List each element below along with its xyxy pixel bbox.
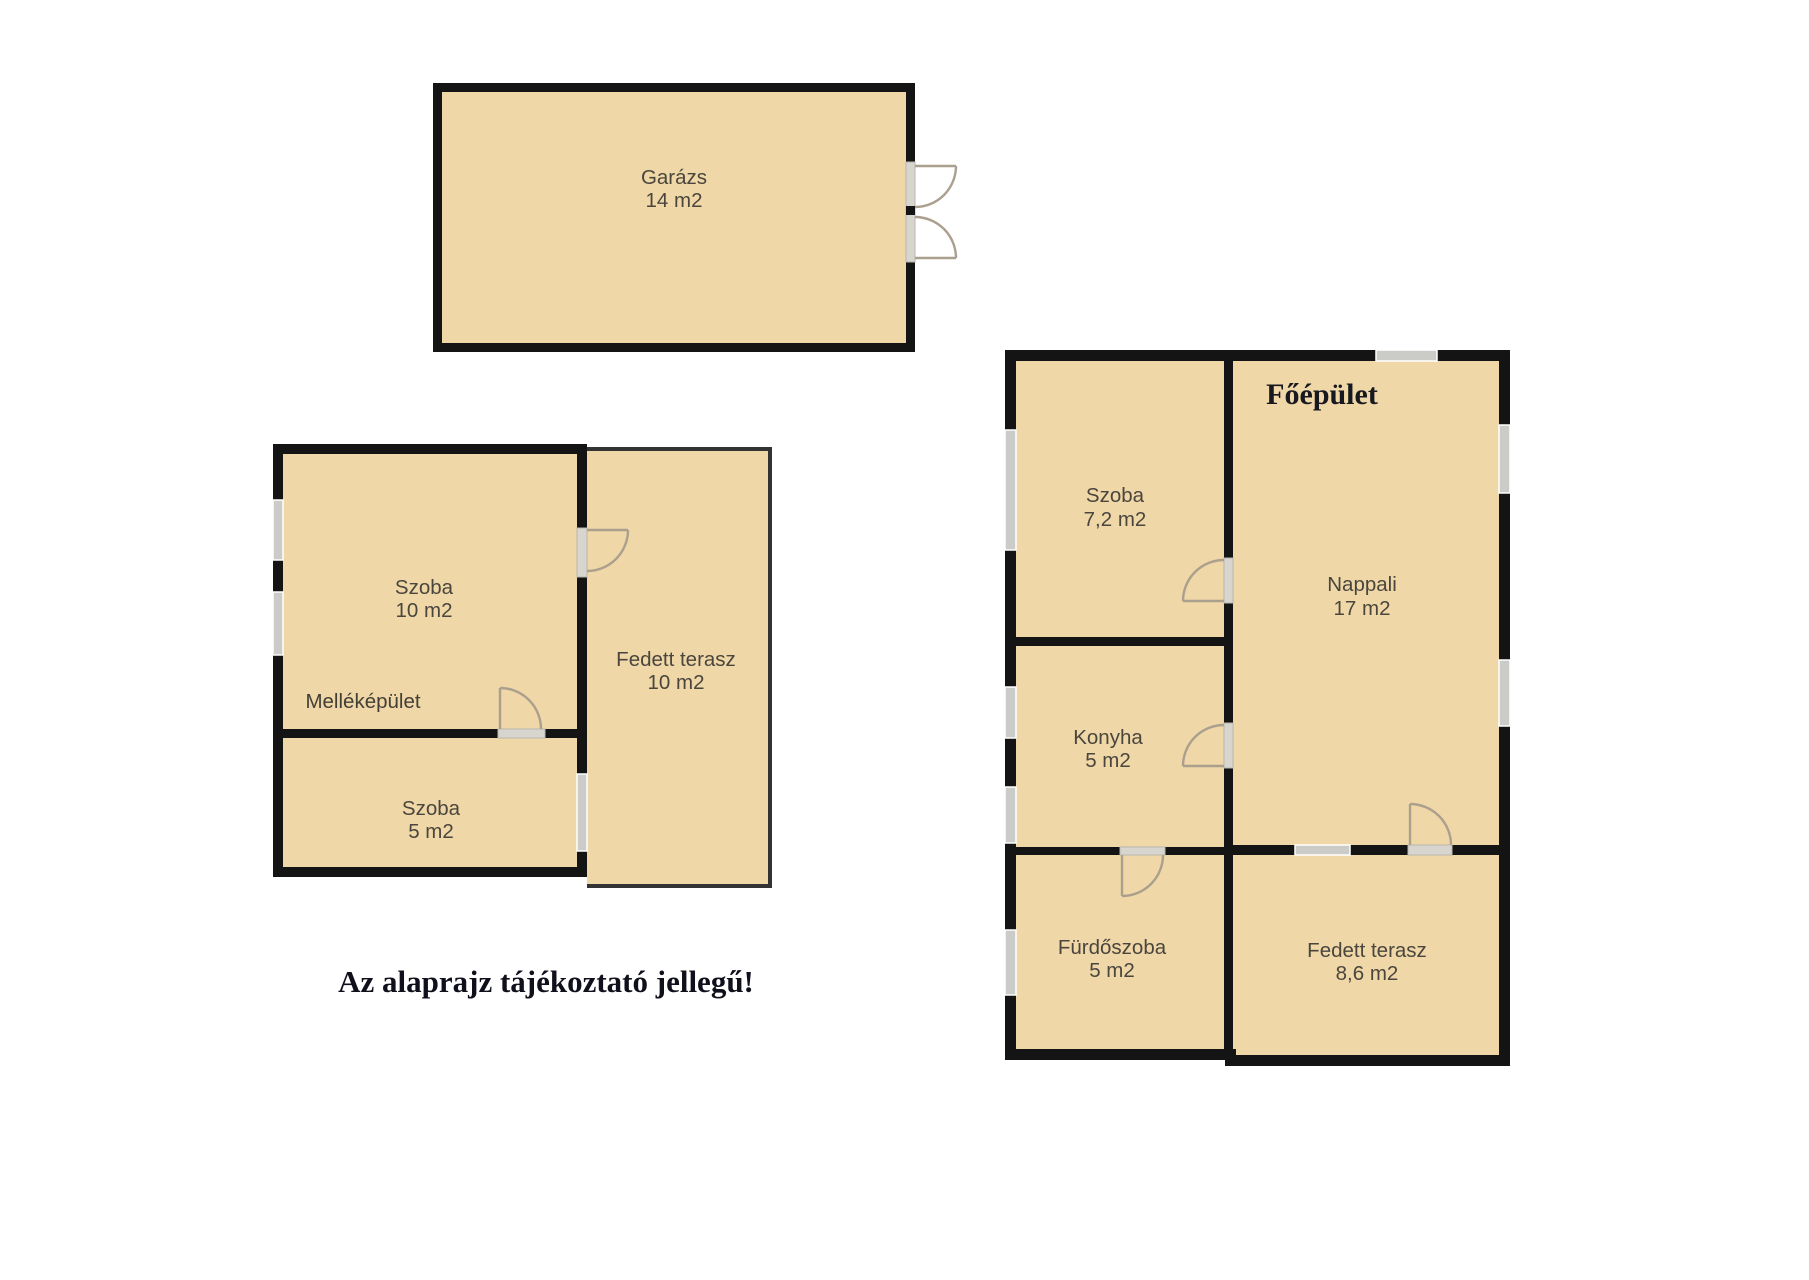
wall-segment — [1005, 843, 1016, 930]
wall-segment — [545, 729, 577, 738]
door-opening — [577, 528, 587, 577]
wall-segment — [433, 83, 442, 352]
main-building-unit: Főépület Szoba 7,2 m2 Nappali 17 m2 Kony… — [1005, 350, 1510, 1066]
wall-segment — [587, 884, 772, 888]
window — [1499, 425, 1510, 493]
wall-segment — [587, 447, 772, 451]
main-building-title: Főépület — [1266, 378, 1378, 411]
door-opening — [1224, 723, 1233, 768]
room-area-label: 5 m2 — [1089, 959, 1135, 982]
wall-segment — [283, 729, 498, 738]
garage-room — [433, 83, 915, 352]
room-name-label: Nappali — [1327, 573, 1397, 596]
door-opening — [498, 729, 545, 738]
room-name-label: Fedett terasz — [1307, 939, 1427, 962]
window — [273, 592, 283, 655]
garage-unit: Garázs 14 m2 — [433, 83, 956, 352]
wall-segment — [1499, 726, 1510, 1066]
wall-segment — [1005, 738, 1016, 787]
wall-segment — [577, 444, 587, 528]
window — [1005, 687, 1016, 738]
wall-segment — [906, 262, 915, 352]
room-name-label: Konyha — [1073, 726, 1143, 749]
wall-segment — [273, 444, 283, 500]
room-name-label: Szoba — [1086, 484, 1145, 507]
window — [273, 500, 283, 560]
door-swing-arc — [915, 166, 956, 207]
wall-segment — [1224, 768, 1233, 1060]
room-area-label: 5 m2 — [1085, 749, 1131, 772]
window — [1295, 845, 1350, 855]
wall-segment — [1350, 845, 1408, 855]
room-name-label: Szoba — [395, 576, 454, 599]
wall-segment — [1224, 603, 1233, 723]
wall-segment — [906, 206, 915, 215]
wall-segment — [1005, 550, 1016, 687]
wall-segment — [273, 560, 283, 592]
room-name-label: Fedett terasz — [616, 648, 736, 671]
wall-segment — [433, 83, 915, 92]
wall-segment — [1016, 847, 1120, 855]
wall-segment — [273, 655, 283, 867]
wall-segment — [577, 851, 587, 877]
wall-segment — [1016, 637, 1224, 646]
door-opening — [1408, 845, 1452, 855]
wall-segment — [1005, 350, 1376, 361]
window — [1005, 787, 1016, 843]
wall-segment — [1499, 493, 1510, 660]
window — [577, 774, 587, 851]
window — [1005, 930, 1016, 995]
wall-segment — [433, 343, 915, 352]
wall-segment — [1452, 845, 1499, 855]
window — [1499, 660, 1510, 726]
wall-segment — [768, 447, 772, 888]
door-swing-arc — [915, 217, 956, 258]
room-area-label: 7,2 m2 — [1084, 508, 1147, 531]
wall-segment — [1233, 845, 1295, 855]
wall-segment — [577, 577, 587, 774]
window — [1005, 430, 1016, 550]
wall-segment — [1499, 350, 1510, 425]
wall-segment — [906, 83, 915, 162]
wall-segment — [1225, 1055, 1510, 1066]
outbuilding-title: Melléképület — [305, 690, 420, 713]
floor-plan-drawing: Garázs 14 m2 Szoba 10 m2 Me — [0, 0, 1809, 1280]
wall-segment — [1165, 847, 1224, 855]
room-area-label: 10 m2 — [396, 599, 453, 622]
room-area-label: 5 m2 — [408, 820, 454, 843]
floor-plan-canvas: Garázs 14 m2 Szoba 10 m2 Me — [0, 0, 1809, 1280]
disclaimer-text: Az alaprajz tájékoztató jellegű! — [338, 964, 754, 999]
room-name-label: Garázs — [641, 166, 707, 189]
wall-segment — [1005, 1049, 1236, 1060]
room-area-label: 8,6 m2 — [1336, 962, 1399, 985]
window — [1376, 350, 1437, 361]
wall-segment — [1224, 361, 1233, 558]
wall-segment — [1005, 350, 1016, 430]
wall-segment — [273, 444, 587, 454]
room-area-label: 10 m2 — [648, 671, 705, 694]
room-area-label: 17 m2 — [1334, 597, 1391, 620]
room-name-label: Fürdőszoba — [1058, 936, 1167, 959]
room-name-label: Szoba — [402, 797, 461, 820]
outbuilding-unit: Szoba 10 m2 Melléképület Szoba 5 m2 Fede… — [273, 444, 772, 888]
door-opening — [1120, 847, 1165, 855]
door-opening — [1224, 558, 1233, 603]
room-area-label: 14 m2 — [646, 189, 703, 212]
wall-segment — [273, 867, 587, 877]
